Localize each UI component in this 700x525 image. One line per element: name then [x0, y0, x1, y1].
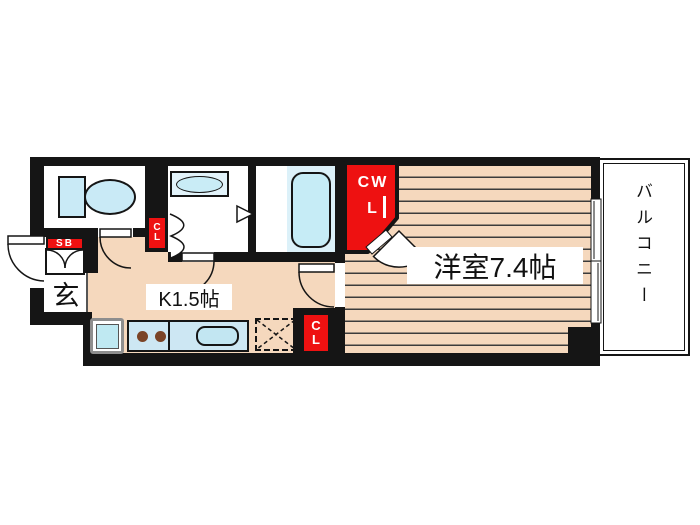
wall	[335, 157, 345, 262]
hall-closet: C L	[147, 216, 167, 250]
main-room-label-text: 洋室7.4帖	[434, 246, 557, 286]
balcony: バルコニー	[598, 158, 690, 356]
cwl-door-line	[383, 196, 386, 218]
wall	[83, 237, 98, 273]
washing-machine-icon	[90, 318, 124, 354]
entrance-label: 玄	[48, 274, 84, 313]
kitchen-closet: C L	[302, 313, 330, 353]
bathtub-icon	[291, 172, 331, 248]
wall	[568, 327, 591, 353]
walk-in-closet-label: CW L	[350, 170, 396, 228]
wall	[248, 166, 256, 252]
toilet-tank-icon	[58, 176, 86, 218]
refrigerator-space	[255, 318, 297, 351]
toilet-bowl-icon	[84, 179, 136, 215]
outside-notch	[0, 325, 83, 435]
kitchen-label-text: K1.5帖	[158, 283, 219, 312]
vanity-sink-icon	[176, 176, 223, 193]
shoe-box-label: SB	[46, 237, 84, 250]
hall-closet-line2: L	[154, 233, 160, 244]
counter-divider	[168, 322, 170, 350]
kitchen-closet-line2: L	[312, 333, 320, 347]
balcony-label: バルコニー	[630, 182, 655, 312]
washing-machine-tub	[96, 324, 119, 349]
cwl-line1: CW	[350, 170, 396, 196]
door-opening	[30, 240, 44, 288]
door-opening	[335, 263, 345, 307]
stove-burner-icon	[137, 331, 148, 342]
kitchen-counter	[127, 320, 249, 352]
door-opening	[182, 252, 214, 262]
sink-icon	[196, 326, 239, 346]
door-opening	[98, 228, 133, 237]
floor-plan: バルコニー SB C L C L	[0, 0, 700, 525]
kitchen-closet-line1: C	[311, 319, 320, 333]
shoe-box-text: SB	[56, 238, 74, 249]
main-room-label: 洋室7.4帖	[407, 247, 583, 284]
cwl-line2: L	[350, 196, 396, 222]
stove-burner-icon	[155, 331, 166, 342]
kitchen-label: K1.5帖	[146, 284, 232, 310]
